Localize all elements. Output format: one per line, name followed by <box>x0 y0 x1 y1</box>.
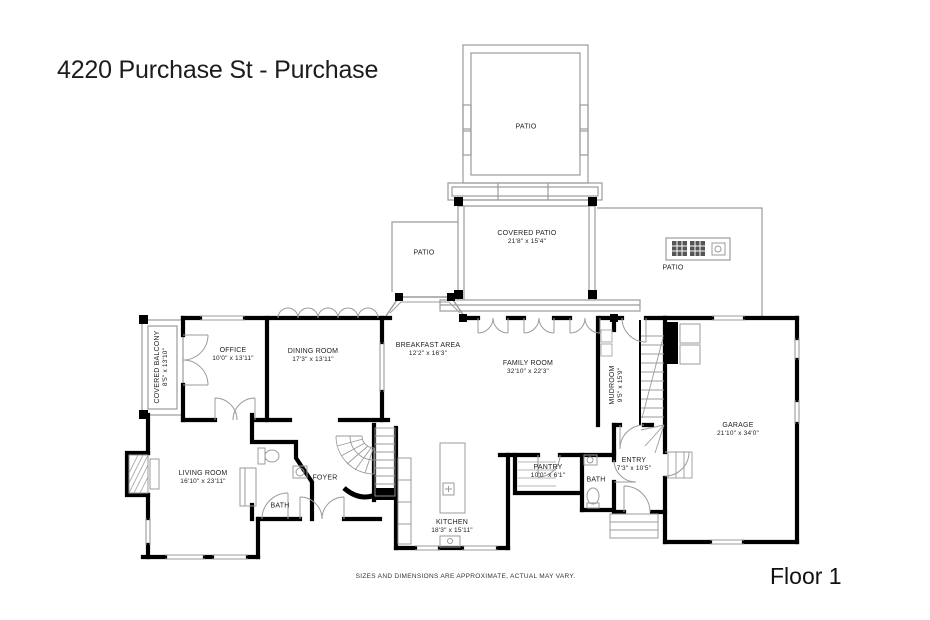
room-label-kitchen: KITCHEN18'3" x 15'11" <box>431 518 473 536</box>
floor-plan-page: 4220 Purchase St - Purchase <box>0 0 930 620</box>
kitchen-island <box>440 443 465 513</box>
room-label-covered-patio: COVERED PATIO21'8" x 15'4" <box>497 229 556 247</box>
room-label-breakfast-area: BREAKFAST AREA12'2" x 16'3" <box>396 341 461 359</box>
main-curved-stair <box>336 436 374 474</box>
outdoor-kitchen-icon <box>666 238 730 260</box>
mudroom-stair <box>641 336 664 453</box>
room-label-garage: GARAGE21'10" x 34'0" <box>717 421 759 439</box>
room-label-patio-right: PATIO <box>663 263 684 272</box>
room-label-bath-powder: BATH <box>271 501 290 510</box>
room-label-foyer: FOYER <box>312 473 337 482</box>
mudroom-cubbies <box>601 330 612 356</box>
living-room-sofa <box>240 468 256 506</box>
room-label-bath-hall: BATH <box>587 475 606 484</box>
covered-patio-outline <box>440 200 640 311</box>
disclaimer-text: SIZES AND DIMENSIONS ARE APPROXIMATE, AC… <box>233 573 698 580</box>
room-label-covered-balcony: COVERED BALCONY8'5" x 13'10" <box>153 330 171 403</box>
room-label-dining-room: DINING ROOM17'3" x 13'11" <box>288 347 338 365</box>
covered-patio-posts <box>454 197 597 299</box>
room-label-office: OFFICE10'0" x 13'11" <box>212 346 254 364</box>
room-label-mudroom: MUDROOM9'5" x 15'9" <box>608 365 626 404</box>
room-label-entry: ENTRY7'3" x 10'5" <box>617 456 651 474</box>
room-label-patio-left: PATIO <box>414 248 435 257</box>
balcony-posts <box>139 315 148 419</box>
room-label-pantry: PANTRY10'0" x 6'1" <box>531 463 565 481</box>
floor-label: Floor 1 <box>770 563 842 590</box>
room-label-family-room: FAMILY ROOM32'10" x 22'3" <box>503 359 553 377</box>
room-label-patio-top: PATIO <box>516 122 537 131</box>
back-stair <box>375 428 395 496</box>
room-label-living-room: LIVING ROOM16'10" x 23'11" <box>179 469 228 487</box>
garage-closets <box>680 324 700 364</box>
entry-porch-steps <box>610 514 658 538</box>
fireplace <box>129 455 159 493</box>
